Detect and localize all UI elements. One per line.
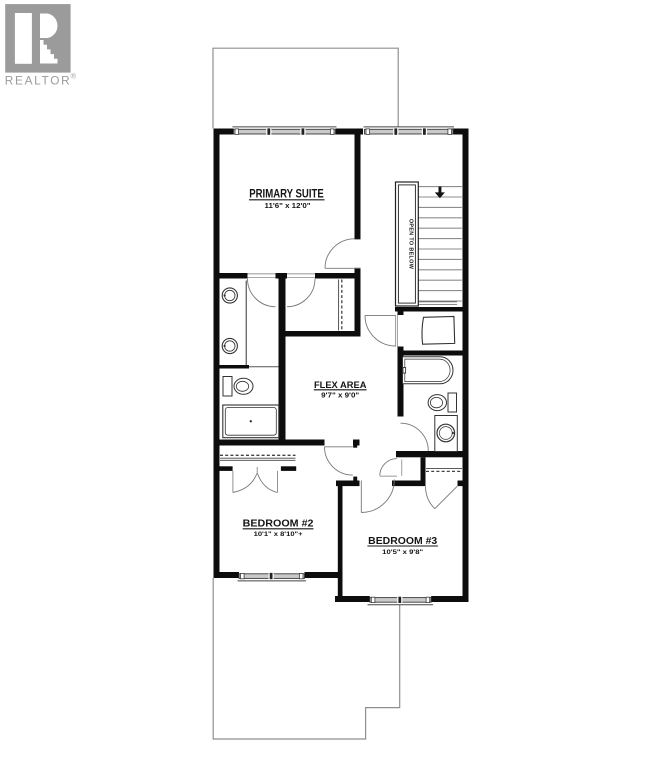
svg-text:OPEN TO BELOW: OPEN TO BELOW [407,219,413,270]
svg-text:®: ® [71,72,77,81]
svg-text:10'1" x 8'10"+: 10'1" x 8'10"+ [254,531,303,538]
svg-text:11'6" x 12'0": 11'6" x 12'0" [265,201,311,210]
svg-text:REALTOR: REALTOR [5,73,72,87]
svg-text:9'7" x 9'0": 9'7" x 9'0" [321,392,359,399]
svg-text:FLEX AREA: FLEX AREA [314,379,367,390]
svg-text:10'5" x 9'8": 10'5" x 9'8" [382,549,423,556]
svg-text:PRIMARY SUITE: PRIMARY SUITE [249,188,324,200]
svg-text:BEDROOM #2: BEDROOM #2 [243,518,314,529]
